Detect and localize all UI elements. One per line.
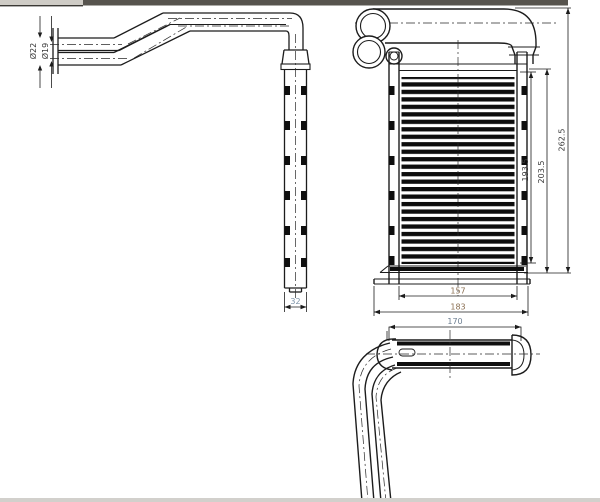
- dim-bottom-tank-length: 170: [447, 317, 462, 326]
- dim-core-fin-width: 157: [450, 287, 465, 296]
- chrome-tab: [0, 0, 83, 5]
- dim-overall-height: 262.5: [558, 129, 567, 152]
- dim-pipe-dia-large: Ø22: [28, 43, 38, 59]
- bottom-edge-strip: [0, 498, 600, 502]
- drawing-canvas: Ø22 Ø19 32: [0, 0, 600, 502]
- bottom-view: 170: [353, 317, 540, 502]
- dim-core-fin-height: 193.5: [521, 159, 530, 182]
- front-view: [353, 9, 556, 296]
- technical-drawing: Ø22 Ø19 32: [0, 0, 600, 502]
- dim-core-width: 183: [450, 303, 465, 312]
- dim-core-height: 203.5: [537, 161, 546, 184]
- pipe-diameter-dimensions: Ø22 Ø19: [28, 16, 54, 88]
- side-view: [50, 13, 310, 298]
- dim-pipe-dia-small: Ø19: [40, 43, 50, 59]
- bottom-tank-length-dimension: 170: [389, 317, 521, 341]
- dim-tank-depth: 32: [290, 297, 300, 306]
- window-chrome-fragment: [0, 0, 568, 6]
- chrome-bar: [83, 0, 568, 6]
- width-dimensions: 157 183: [374, 286, 528, 316]
- pipe-end-rings: [353, 9, 390, 68]
